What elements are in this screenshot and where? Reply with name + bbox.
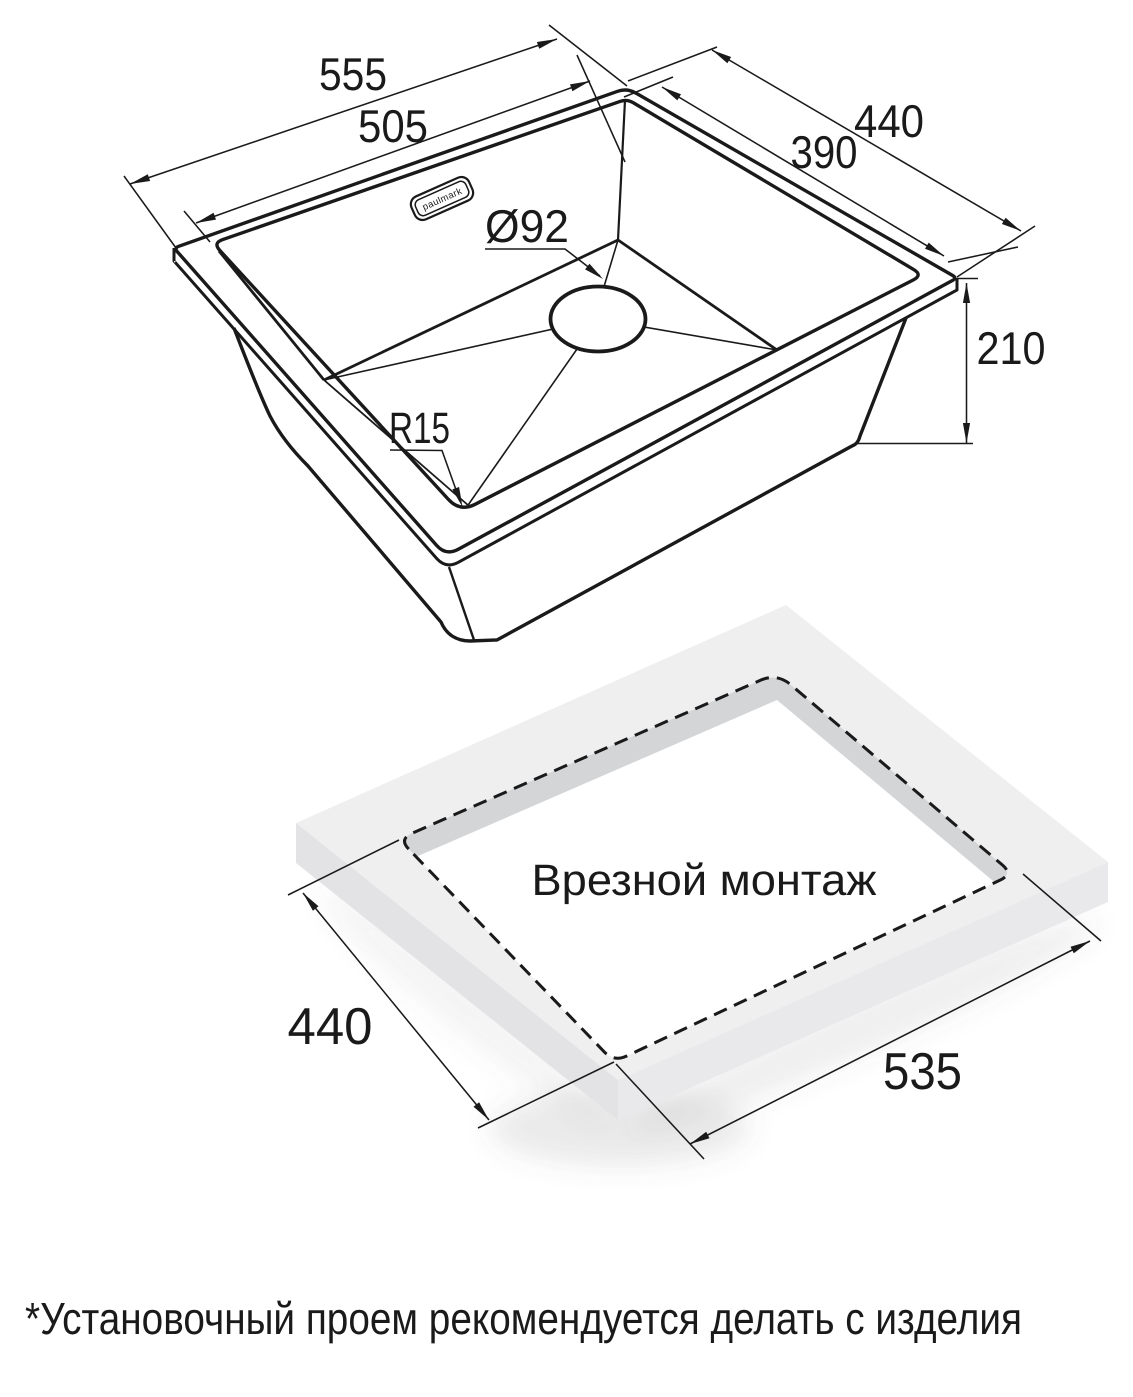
svg-text:535: 535 [883,1043,962,1101]
svg-text:R15: R15 [389,404,450,453]
svg-text:555: 555 [319,48,387,100]
svg-text:390: 390 [791,126,858,178]
svg-text:Ø92: Ø92 [485,200,569,252]
svg-text:Врезной монтаж: Врезной монтаж [532,856,878,905]
svg-text:*Установочный проем рекомендуе: *Установочный проем рекомендуется делать… [25,1293,1022,1344]
svg-text:210: 210 [977,322,1046,374]
svg-text:440: 440 [288,998,373,1056]
svg-text:505: 505 [358,100,428,152]
svg-text:440: 440 [854,95,924,147]
